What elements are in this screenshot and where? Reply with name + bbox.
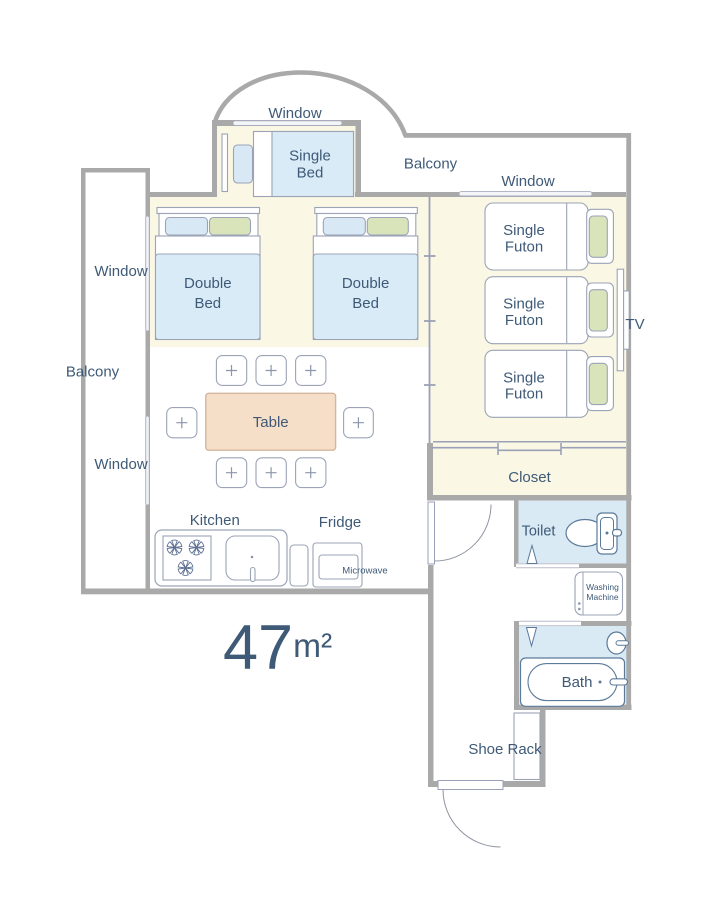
svg-text:Window: Window xyxy=(94,456,148,473)
svg-text:Window: Window xyxy=(501,173,555,190)
svg-text:Bed: Bed xyxy=(297,165,324,182)
svg-text:Single: Single xyxy=(289,148,331,165)
svg-text:Bed: Bed xyxy=(352,295,379,312)
svg-text:Window: Window xyxy=(94,263,148,280)
svg-text:Window: Window xyxy=(268,105,322,122)
svg-text:Futon: Futon xyxy=(505,238,543,255)
svg-text:Toilet: Toilet xyxy=(522,524,556,540)
svg-text:Microwave: Microwave xyxy=(342,566,387,577)
svg-text:Balcony: Balcony xyxy=(404,156,458,173)
svg-text:Single: Single xyxy=(503,222,545,239)
svg-text:Shoe Rack: Shoe Rack xyxy=(468,741,542,758)
svg-text:Futon: Futon xyxy=(505,386,543,403)
svg-text:Double: Double xyxy=(342,275,390,292)
svg-text:Single: Single xyxy=(503,369,545,386)
svg-text:Futon: Futon xyxy=(505,312,543,329)
svg-text:Washing: Washing xyxy=(586,582,619,592)
svg-text:47m²: 47m² xyxy=(223,613,332,683)
svg-text:Single: Single xyxy=(503,296,545,313)
svg-text:Bath: Bath xyxy=(562,674,593,691)
svg-text:Closet: Closet xyxy=(508,469,551,486)
svg-text:Kitchen: Kitchen xyxy=(190,512,240,529)
svg-text:Table: Table xyxy=(253,414,289,431)
svg-text:Double: Double xyxy=(184,275,232,292)
svg-text:Balcony: Balcony xyxy=(66,364,120,381)
svg-text:Machine: Machine xyxy=(586,592,618,602)
svg-text:Bed: Bed xyxy=(194,295,221,312)
svg-text:Fridge: Fridge xyxy=(319,514,362,531)
svg-text:TV: TV xyxy=(625,316,644,333)
